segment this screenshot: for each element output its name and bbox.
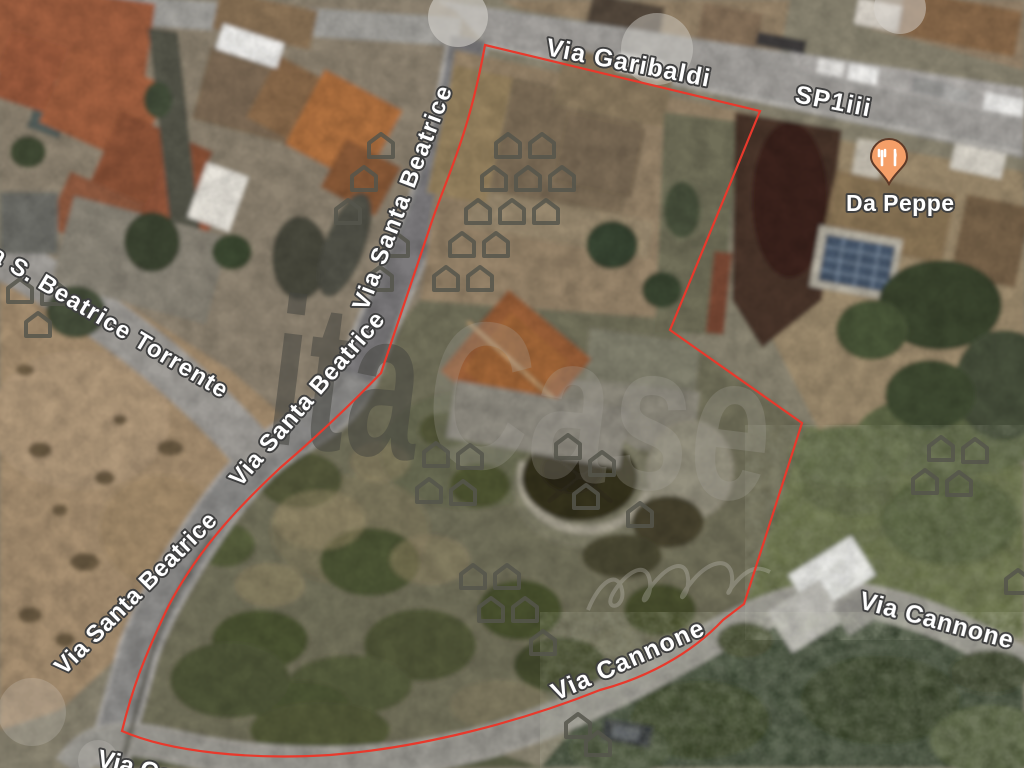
svg-text:Case: Case [415, 272, 787, 547]
svg-text:Da Peppe: Da Peppe [846, 190, 954, 216]
svg-text:ita: ita [257, 253, 438, 505]
